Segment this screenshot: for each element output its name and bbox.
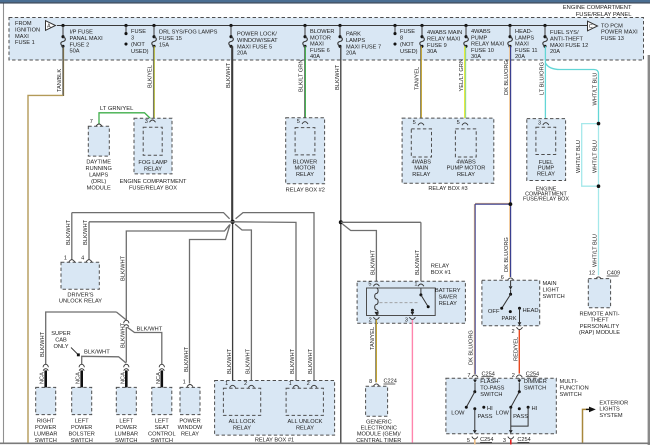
svg-text:MAXI: MAXI <box>515 42 529 48</box>
svg-text:POWER: POWER <box>179 418 200 424</box>
svg-text:BLOWER: BLOWER <box>293 159 317 165</box>
svg-text:TAN/BLK: TAN/BLK <box>57 69 63 92</box>
svg-text:MODULE (GEM)/: MODULE (GEM)/ <box>357 432 401 438</box>
svg-text:3: 3 <box>538 120 541 126</box>
svg-text:RELAY: RELAY <box>296 426 314 432</box>
svg-text:UNLOCK RELAY: UNLOCK RELAY <box>59 299 102 305</box>
svg-text:WHT/LT BLU: WHT/LT BLU <box>593 234 599 267</box>
svg-text:WINDOW/SEAT: WINDOW/SEAT <box>237 38 278 44</box>
svg-text:12: 12 <box>589 271 595 277</box>
svg-text:LEFT: LEFT <box>155 418 169 424</box>
svg-text:ALL LOCK: ALL LOCK <box>229 419 256 425</box>
svg-text:BLOWER: BLOWER <box>310 29 334 35</box>
svg-text:2: 2 <box>244 381 247 387</box>
svg-text:SWITCH: SWITCH <box>560 392 582 398</box>
svg-text:C409: C409 <box>607 271 620 277</box>
svg-text:20A: 20A <box>515 54 525 60</box>
svg-text:8: 8 <box>400 36 403 42</box>
svg-text:4WABS MAIN: 4WABS MAIN <box>427 30 462 36</box>
svg-text:TAN/YEL: TAN/YEL <box>415 67 421 90</box>
svg-text:RED/YEL: RED/YEL <box>513 337 519 361</box>
svg-text:BLK/WHT: BLK/WHT <box>246 348 252 374</box>
svg-text:MAXI FUSE 12: MAXI FUSE 12 <box>550 43 588 49</box>
svg-text:HI: HI <box>532 406 538 412</box>
svg-text:BLK/WHT: BLK/WHT <box>40 331 46 357</box>
svg-text:MAXI FUSE 5: MAXI FUSE 5 <box>237 44 272 50</box>
svg-text:YEL/LT GRN: YEL/LT GRN <box>459 59 465 91</box>
svg-text:ALL UNLOCK: ALL UNLOCK <box>288 419 323 425</box>
svg-text:2: 2 <box>369 318 372 324</box>
svg-text:ENGINE COMPARTMENT: ENGINE COMPARTMENT <box>563 5 632 11</box>
svg-text:BATTERY: BATTERY <box>435 288 461 294</box>
svg-text:BLK/LT GRN: BLK/LT GRN <box>299 60 305 92</box>
svg-text:FUSE: FUSE <box>400 29 415 35</box>
svg-text:1: 1 <box>289 381 292 387</box>
svg-text:1: 1 <box>414 281 417 287</box>
svg-text:POWER: POWER <box>116 425 137 431</box>
svg-text:MAIN: MAIN <box>414 166 428 172</box>
svg-text:RELAY MAXI: RELAY MAXI <box>427 36 461 42</box>
svg-text:FUSE 6: FUSE 6 <box>310 48 330 54</box>
svg-text:(DRL): (DRL) <box>91 179 106 185</box>
svg-text:LEFT: LEFT <box>119 418 133 424</box>
svg-text:HEAD-: HEAD- <box>515 29 533 35</box>
svg-text:3: 3 <box>131 36 134 42</box>
svg-text:30A: 30A <box>427 49 437 55</box>
svg-text:RELAY MAXI: RELAY MAXI <box>471 42 505 48</box>
svg-text:RELAY: RELAY <box>181 431 199 437</box>
svg-text:4WABS: 4WABS <box>456 159 476 165</box>
svg-text:LAMPS: LAMPS <box>346 38 365 44</box>
svg-text:A: A <box>47 24 51 30</box>
svg-text:RELAY: RELAY <box>457 172 475 178</box>
svg-text:15A: 15A <box>159 42 169 48</box>
svg-text:SWITCH: SWITCH <box>115 438 137 444</box>
svg-text:DRIVER'S: DRIVER'S <box>67 292 93 298</box>
svg-text:PERSONALITY: PERSONALITY <box>580 324 620 330</box>
svg-text:MAIN: MAIN <box>543 281 557 287</box>
svg-text:MULTI-: MULTI- <box>560 379 579 385</box>
svg-text:POWER LOCK/: POWER LOCK/ <box>237 32 277 38</box>
svg-text:USED): USED) <box>400 49 418 55</box>
svg-text:WHT/LT BLU: WHT/LT BLU <box>576 140 582 173</box>
svg-text:5: 5 <box>457 120 460 126</box>
svg-text:FLASH-: FLASH- <box>480 379 500 385</box>
svg-text:MAXI: MAXI <box>310 42 324 48</box>
svg-text:NCA: NCA <box>76 372 82 384</box>
svg-text:CONTROL: CONTROL <box>148 431 176 437</box>
svg-text:GENERIC: GENERIC <box>366 419 392 425</box>
svg-text:5: 5 <box>467 438 470 444</box>
svg-text:20A: 20A <box>550 49 560 55</box>
svg-text:BLK/WHT: BLK/WHT <box>84 350 110 356</box>
svg-text:PASS: PASS <box>478 414 493 420</box>
svg-text:SUPER: SUPER <box>51 331 70 337</box>
svg-text:FROM: FROM <box>15 21 32 27</box>
svg-text:FUSE 2: FUSE 2 <box>70 42 90 48</box>
svg-text:CAB: CAB <box>55 338 67 344</box>
svg-text:4: 4 <box>81 256 84 262</box>
svg-text:5: 5 <box>297 119 300 125</box>
svg-text:PUMP: PUMP <box>471 35 488 41</box>
svg-text:FUSE 1: FUSE 1 <box>15 40 35 46</box>
svg-text:FUSE 13: FUSE 13 <box>601 36 624 42</box>
svg-text:1: 1 <box>183 380 186 386</box>
svg-text:HEAD: HEAD <box>523 308 539 314</box>
svg-text:SWITCH: SWITCH <box>543 294 565 300</box>
svg-text:50A: 50A <box>70 49 80 55</box>
svg-text:DK BLU/ORG: DK BLU/ORG <box>468 330 474 365</box>
svg-text:LUMBAR: LUMBAR <box>34 431 58 437</box>
svg-text:BLK/WHT: BLK/WHT <box>83 219 89 245</box>
svg-text:ANTI-THEFT: ANTI-THEFT <box>550 36 583 42</box>
svg-text:RELAY: RELAY <box>233 426 251 432</box>
svg-text:ELECTRONIC: ELECTRONIC <box>361 426 397 432</box>
svg-text:3: 3 <box>145 119 148 125</box>
svg-text:(NOT: (NOT <box>131 42 145 48</box>
svg-text:7: 7 <box>90 119 93 125</box>
svg-text:BLK/WHT: BLK/WHT <box>371 249 377 275</box>
svg-text:DK BLU/ORG: DK BLU/ORG <box>504 60 510 95</box>
svg-text:5: 5 <box>368 281 371 287</box>
svg-text:DAYTIME: DAYTIME <box>86 159 111 165</box>
svg-text:POWER: POWER <box>71 425 92 431</box>
svg-text:FUSE/RELAY BOX: FUSE/RELAY BOX <box>523 196 569 202</box>
svg-text:NCA: NCA <box>156 372 162 384</box>
svg-text:FUNCTION: FUNCTION <box>560 385 589 391</box>
svg-text:RELAY: RELAY <box>439 301 457 307</box>
svg-text:BLK/WHT: BLK/WHT <box>121 255 127 281</box>
svg-text:4WABS: 4WABS <box>471 29 491 35</box>
svg-text:THEFT: THEFT <box>590 318 609 324</box>
svg-text:FUSE/RELAY PANEL: FUSE/RELAY PANEL <box>576 12 633 18</box>
svg-text:FUSE: FUSE <box>131 29 146 35</box>
svg-text:WINDOW: WINDOW <box>178 425 203 431</box>
svg-text:FUSE 15: FUSE 15 <box>159 36 182 42</box>
svg-text:BLK/WHT: BLK/WHT <box>184 346 190 372</box>
svg-text:PARK: PARK <box>346 32 361 38</box>
svg-text:RELAY BOX #1: RELAY BOX #1 <box>255 437 294 443</box>
svg-text:REMOTE ANTI-: REMOTE ANTI- <box>579 312 619 318</box>
svg-text:RELAY BOX #2: RELAY BOX #2 <box>286 188 325 194</box>
svg-text:BLK/YEL: BLK/YEL <box>148 65 154 88</box>
svg-text:20A: 20A <box>237 51 247 57</box>
svg-text:MODULE: MODULE <box>87 185 111 191</box>
svg-text:TO PCM: TO PCM <box>601 23 623 29</box>
svg-text:USED): USED) <box>131 49 149 55</box>
svg-text:BLK/WHT: BLK/WHT <box>335 64 341 90</box>
svg-text:LT BLU/ORG: LT BLU/ORG <box>540 62 546 95</box>
svg-text:RELAY: RELAY <box>431 263 450 269</box>
svg-text:NCA: NCA <box>120 372 126 384</box>
svg-text:MAXI: MAXI <box>15 34 29 40</box>
svg-text:BOX #1: BOX #1 <box>431 270 451 276</box>
svg-text:NCA: NCA <box>40 372 46 384</box>
svg-text:30A: 30A <box>471 54 481 60</box>
svg-text:SWITCH: SWITCH <box>480 392 502 398</box>
svg-text:OFF: OFF <box>488 309 500 315</box>
svg-text:ENGINE COMPARTMENT: ENGINE COMPARTMENT <box>120 179 187 185</box>
svg-text:BLK/WHT: BLK/WHT <box>137 327 163 333</box>
svg-text:PUMP MOTOR: PUMP MOTOR <box>447 166 486 172</box>
svg-text:(RAP) MODULE: (RAP) MODULE <box>579 330 620 336</box>
svg-text:FUSE/RELAY BOX: FUSE/RELAY BOX <box>129 185 177 191</box>
svg-text:SYSTEM: SYSTEM <box>599 413 622 419</box>
svg-text:SWITCH: SWITCH <box>71 438 93 444</box>
svg-text:DIMMER: DIMMER <box>524 379 547 385</box>
svg-text:CENTRAL TIMER: CENTRAL TIMER <box>356 438 401 444</box>
svg-text:LEFT: LEFT <box>75 418 89 424</box>
svg-text:2: 2 <box>511 329 514 335</box>
svg-text:FOG LAMP: FOG LAMP <box>138 160 167 166</box>
svg-text:SWITCH: SWITCH <box>524 385 546 391</box>
svg-text:BLK/WHT: BLK/WHT <box>415 249 421 275</box>
svg-text:LIGHT: LIGHT <box>543 287 560 293</box>
svg-text:HI: HI <box>487 406 493 412</box>
svg-text:POWER: POWER <box>35 425 56 431</box>
svg-text:RELAY: RELAY <box>144 166 162 172</box>
svg-text:LOW: LOW <box>451 410 465 416</box>
svg-text:EXTERIOR: EXTERIOR <box>599 400 628 406</box>
svg-text:SEAT: SEAT <box>155 425 170 431</box>
svg-text:3: 3 <box>503 438 506 444</box>
svg-text:RELAY BOX #3: RELAY BOX #3 <box>428 186 467 192</box>
svg-text:4WABS: 4WABS <box>412 159 432 165</box>
svg-text:RELAY: RELAY <box>537 172 555 178</box>
svg-text:RELAY: RELAY <box>412 172 430 178</box>
svg-text:BLK/WHT: BLK/WHT <box>227 348 233 374</box>
svg-text:IGNITION: IGNITION <box>15 27 40 33</box>
svg-text:LT GRN/YEL: LT GRN/YEL <box>100 106 134 112</box>
svg-text:PASS: PASS <box>513 414 528 420</box>
svg-text:FUSE 10: FUSE 10 <box>471 48 494 54</box>
svg-text:PANAL MAXI: PANAL MAXI <box>70 36 104 42</box>
svg-text:BLK/WHT: BLK/WHT <box>121 322 127 348</box>
svg-text:LAMPS: LAMPS <box>89 172 108 178</box>
svg-text:BLK/WHT: BLK/WHT <box>290 348 296 374</box>
svg-text:ONLY: ONLY <box>54 344 69 350</box>
svg-text:BLK/WHT: BLK/WHT <box>308 348 314 374</box>
svg-text:SWITCH: SWITCH <box>35 438 57 444</box>
svg-text:(NOT: (NOT <box>400 42 414 48</box>
svg-text:DRL SYS/FOG LAMPS: DRL SYS/FOG LAMPS <box>159 30 218 36</box>
svg-text:POWER MAXI: POWER MAXI <box>601 30 638 36</box>
svg-text:RELAY: RELAY <box>296 172 314 178</box>
svg-text:RUNNING: RUNNING <box>86 166 112 172</box>
svg-text:BOLSTER: BOLSTER <box>69 431 95 437</box>
svg-text:LUMBAR: LUMBAR <box>115 431 139 437</box>
svg-text:5: 5 <box>413 120 416 126</box>
svg-text:SAVER: SAVER <box>438 294 457 300</box>
svg-text:PARK: PARK <box>502 316 517 322</box>
svg-text:WHT/LT BLU: WHT/LT BLU <box>593 72 599 105</box>
svg-text:WHT/LT BLU: WHT/LT BLU <box>593 140 599 173</box>
svg-text:MOTOR: MOTOR <box>295 166 316 172</box>
svg-text:C: C <box>589 24 593 30</box>
svg-text:2: 2 <box>307 381 310 387</box>
svg-text:SWITCH: SWITCH <box>151 438 173 444</box>
svg-text:FUEL SYS/: FUEL SYS/ <box>550 30 579 36</box>
svg-text:8: 8 <box>369 379 372 385</box>
svg-text:MOTOR: MOTOR <box>310 35 331 41</box>
svg-text:BLK/WHT: BLK/WHT <box>226 62 232 88</box>
svg-text:TO-PASS: TO-PASS <box>480 385 504 391</box>
svg-text:3: 3 <box>405 318 408 324</box>
svg-text:FUSE 11: FUSE 11 <box>515 48 537 54</box>
svg-text:LOW: LOW <box>496 410 510 416</box>
svg-text:MAXI FUSE 7: MAXI FUSE 7 <box>346 44 381 50</box>
svg-text:BLK/WHT: BLK/WHT <box>66 219 72 245</box>
svg-text:1: 1 <box>64 256 67 262</box>
svg-text:LAMPS: LAMPS <box>515 35 534 41</box>
svg-text:I/P FUSE: I/P FUSE <box>70 30 94 36</box>
svg-text:1: 1 <box>225 381 228 387</box>
svg-text:FUSE 9: FUSE 9 <box>427 43 447 49</box>
svg-text:DK BLU/ORG: DK BLU/ORG <box>504 237 510 272</box>
svg-text:TAN/YEL: TAN/YEL <box>370 327 376 350</box>
svg-text:RIGHT: RIGHT <box>37 418 55 424</box>
svg-text:40A: 40A <box>310 54 320 60</box>
svg-text:20A: 20A <box>346 51 356 57</box>
svg-text:LIGHTS: LIGHTS <box>599 407 620 413</box>
